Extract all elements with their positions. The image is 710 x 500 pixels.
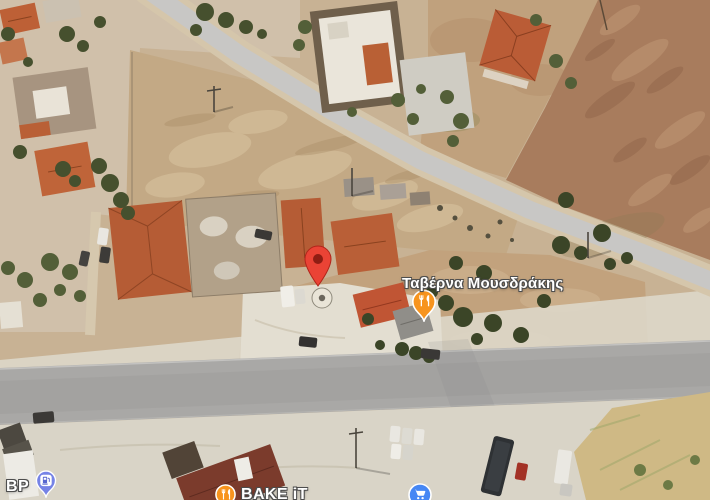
poi-label-bp[interactable]: BP	[6, 478, 29, 496]
gas-station-pin-icon	[35, 468, 57, 498]
grocery-store-badge[interactable]	[408, 483, 432, 500]
map-viewport[interactable]: Ταβέρνα Μουσδράκης BP BAKE iT	[0, 0, 710, 500]
dropped-pin-icon	[303, 245, 333, 287]
dropped-pin-marker[interactable]	[303, 245, 333, 287]
shopping-cart-badge-icon	[408, 483, 432, 500]
restaurant-pin-taverna[interactable]	[411, 288, 437, 322]
restaurant-badge-bake-it[interactable]	[215, 484, 236, 500]
poi-label-bake-it[interactable]: BAKE iT	[241, 486, 308, 500]
satellite-imagery	[0, 0, 710, 500]
restaurant-badge-icon	[215, 484, 236, 500]
restaurant-pin-icon	[411, 288, 437, 322]
gas-station-pin-bp[interactable]	[35, 468, 57, 498]
poi-label-taverna[interactable]: Ταβέρνα Μουσδράκης	[402, 276, 563, 293]
